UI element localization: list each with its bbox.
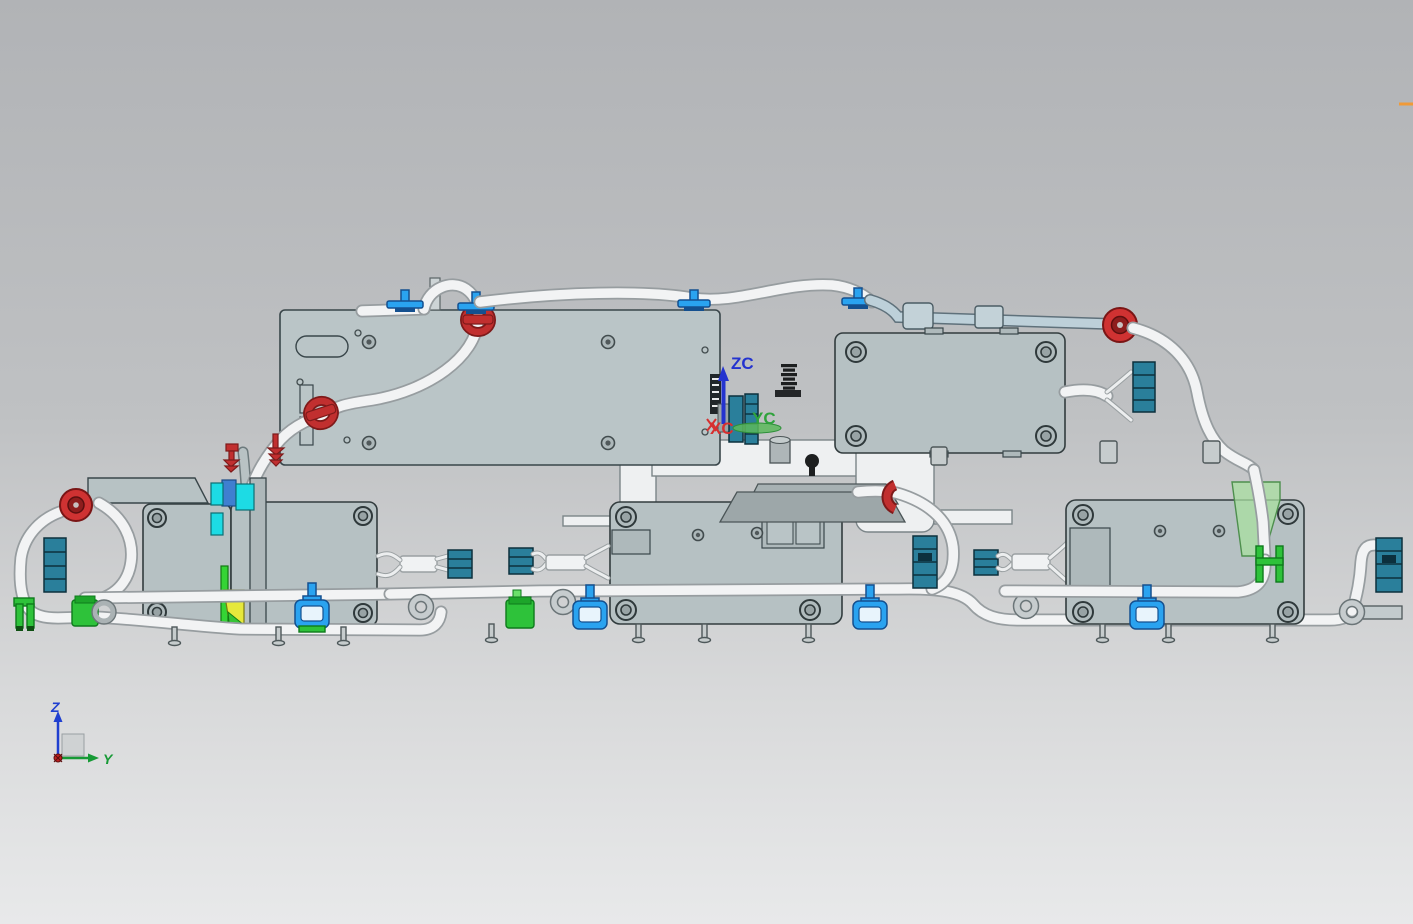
blue-tube-clip[interactable]: [387, 290, 423, 312]
harness-sleeve: [400, 556, 437, 572]
teal-connector[interactable]: [448, 550, 472, 578]
red-firtree-pin[interactable]: [224, 444, 239, 472]
cyan-connector[interactable]: [236, 484, 254, 510]
triad-z-label: Z: [50, 699, 60, 715]
cyan-connector[interactable]: [211, 513, 223, 535]
blue-bracket-clamp[interactable]: [222, 480, 236, 506]
triad-cube: [62, 734, 84, 756]
x-axis-origin: [54, 754, 62, 762]
cyan-connector[interactable]: [211, 483, 223, 505]
wcs-xc-label: XC: [710, 419, 734, 438]
wcs-zc-label: ZC: [731, 354, 754, 373]
cad-viewport[interactable]: ZC YC XC Z Y: [0, 0, 1413, 924]
green-clip[interactable]: [14, 598, 34, 631]
model-view[interactable]: ZC YC XC Z Y: [0, 0, 1413, 924]
eyelet-ring[interactable]: [409, 595, 434, 620]
eyelet-ring[interactable]: [551, 590, 576, 615]
teal-connector[interactable]: [509, 548, 533, 574]
harness-sleeve: [1012, 554, 1050, 570]
teal-connector[interactable]: [1133, 362, 1155, 412]
teal-connector[interactable]: [974, 550, 998, 575]
tube-elbow-bracket: [903, 303, 933, 329]
teal-connector[interactable]: [44, 538, 66, 592]
triad-y-label: Y: [103, 751, 114, 767]
top-right-control-module[interactable]: [835, 300, 1254, 470]
shelf-bracket: [88, 478, 208, 503]
harness-top-run[interactable]: [480, 285, 874, 311]
teal-connector-stack[interactable]: [913, 536, 937, 588]
wcs-yc-label: YC: [752, 409, 776, 428]
threaded-stud: [775, 364, 801, 397]
far-right-connector[interactable]: [1340, 538, 1403, 625]
red-grommet[interactable]: [60, 489, 92, 521]
red-clamp-ring[interactable]: [303, 397, 339, 429]
teal-connector-stack[interactable]: [1376, 538, 1402, 592]
orientation-triad[interactable]: Z Y: [50, 699, 114, 767]
harness-sleeve: [546, 555, 586, 570]
tube-collar: [975, 306, 1003, 328]
